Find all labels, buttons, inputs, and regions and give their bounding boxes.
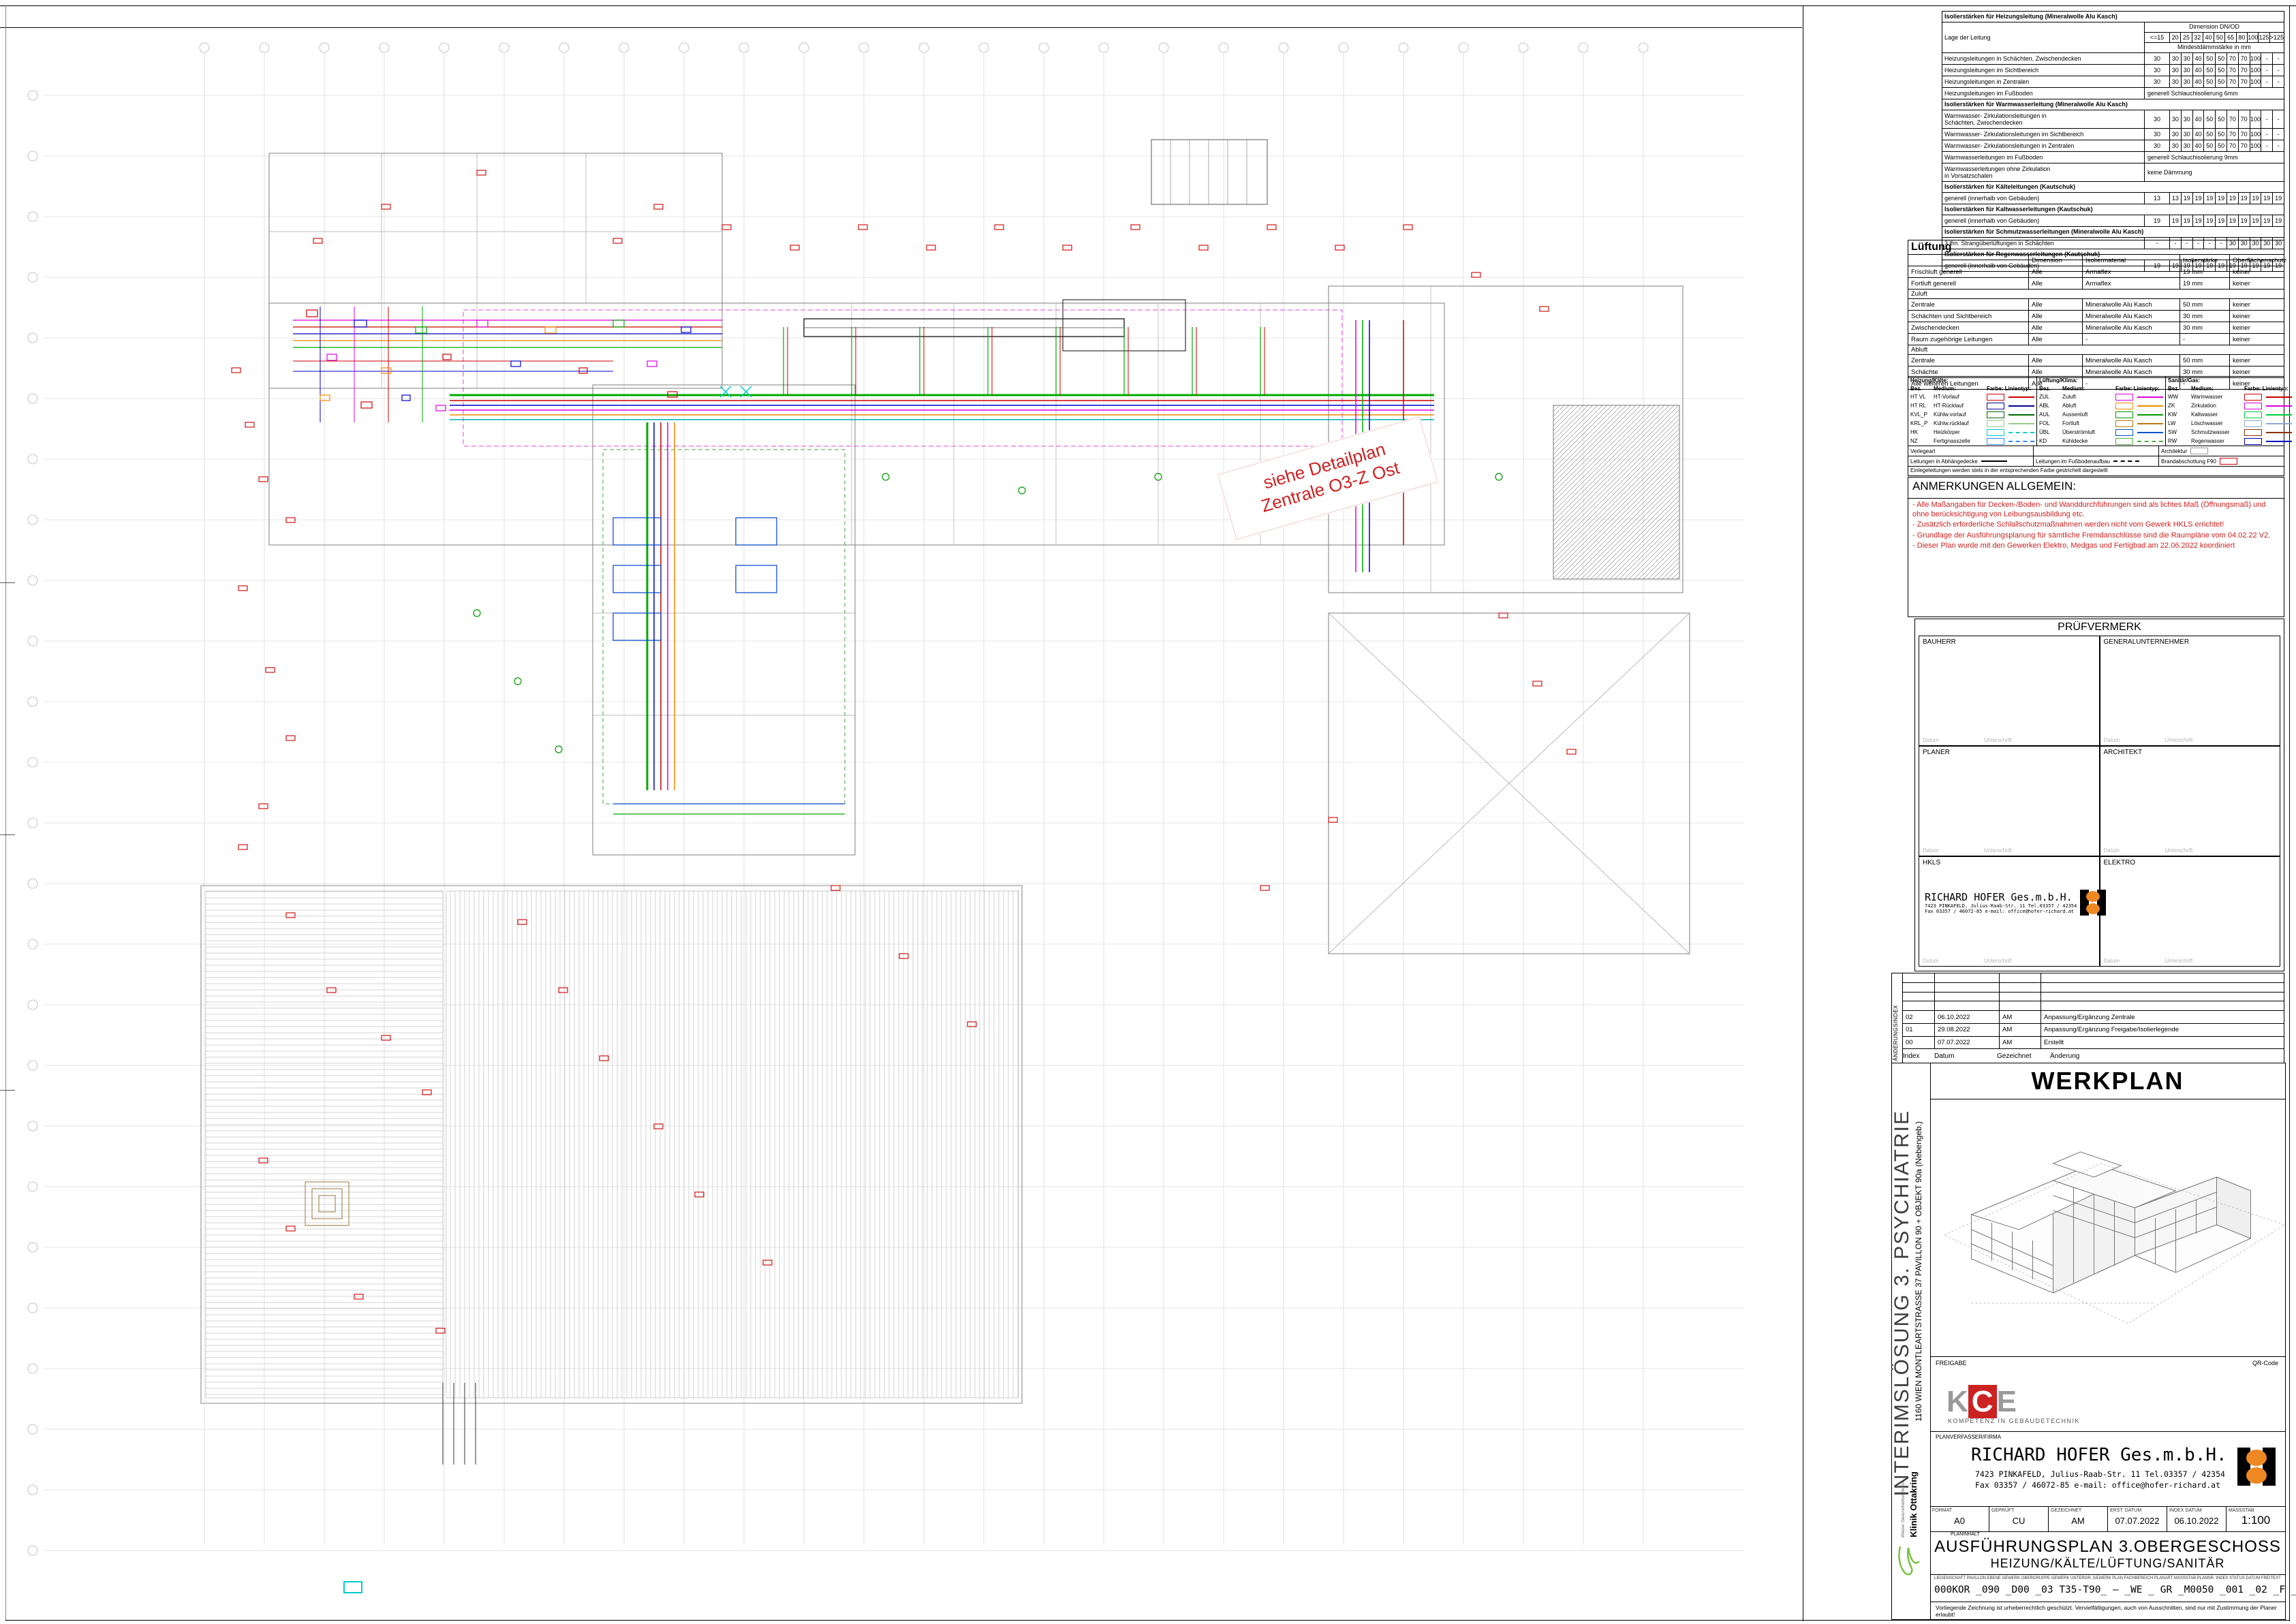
revision-cell: 02 [1903, 1011, 1935, 1023]
ventilation-cell: Zentrale [1908, 299, 2029, 310]
ins-value-cell: 19 [2250, 193, 2262, 204]
legend-linetype [2137, 396, 2163, 398]
ins-value-cell: 19 [2145, 215, 2170, 226]
legend-fussboden: Leitungen im Fußbodenaufbau [2034, 456, 2159, 466]
legend-color-swatch [2115, 438, 2133, 445]
ins-value-cell: 100 [2250, 129, 2262, 140]
legend-verlegeart: Verlegeart [1908, 446, 2034, 456]
legend-head-farbe: Farbe: Linientyp: [2244, 386, 2289, 392]
ins-dim-cell: 100 [2248, 33, 2259, 42]
revision-cell: 06.10.2022 [1935, 1011, 2000, 1023]
legend-head-bez: Bez. [2168, 386, 2191, 392]
ins-header-right: Dimension DN/OD<=1520253240506580100125>… [2145, 22, 2284, 52]
ins-value-cell: 70 [2239, 65, 2250, 76]
revision-empty-cell [1935, 973, 2000, 982]
equipment-box [327, 354, 337, 360]
revision-cell: 00 [1903, 1037, 1935, 1049]
firm-address-2: Fax 03357 / 46072-85 e-mail: office@hofe… [1975, 1480, 2220, 1490]
equipment-box [647, 361, 657, 366]
revision-empty-cell [2000, 973, 2041, 982]
grid-bubble-top [1339, 43, 1348, 52]
legend-linetype [2137, 405, 2163, 407]
revision-footer-datum: Datum [1934, 1052, 1997, 1060]
ventilation-cell: Alle [2029, 266, 2083, 277]
ins-value-cell: 19 [2250, 215, 2262, 226]
planverfasser-label: PLANVERFASSER/FIRMA [1936, 1434, 2001, 1440]
ventilation-cell: Mineralwolle Alu Kasch [2083, 311, 2180, 322]
ins-value-cell: 70 [2227, 76, 2239, 87]
grid-bubble-left [28, 697, 37, 706]
ins-value-cell: 50 [2216, 53, 2227, 64]
legend-group-title: Sanitär/Gas: [2166, 377, 2294, 386]
red-marker [1260, 886, 1269, 890]
legend-item-bez: ZK [2168, 403, 2191, 409]
legend-linetype [2266, 405, 2292, 407]
legend-item-bez: ÜBL [2039, 429, 2062, 435]
ins-row-label: generell (innerhalb von Gebäuden) [1942, 215, 2145, 226]
valve-circle [474, 610, 480, 616]
plannr-header: STATUS [2229, 1576, 2245, 1580]
legend-linetype [2137, 423, 2163, 424]
klinik-logo-block: Wiener Gesundheitsverbund Klinik Ottakri… [1895, 1415, 1927, 1578]
red-marker [1472, 272, 1480, 277]
equipment-box [354, 320, 367, 327]
ins-row-label: Warmwasserleitungen ohne Zirkulation in … [1942, 163, 2145, 181]
approval-block: PRÜFVERMERK BAUHERRDatumUnterschriftGENE… [1914, 619, 2284, 971]
ventilation-cell: keiner [2230, 278, 2284, 289]
revision-empty-cell [2000, 993, 2041, 1001]
plannr-header: MASSSTAB [2174, 1576, 2196, 1580]
klinik-logo-icon [1896, 1541, 1923, 1578]
unterschrift-label: Unterschrift [1984, 958, 2012, 964]
legend-item-bez: KVL_P [1910, 411, 1934, 418]
revision-cell: 01 [1903, 1024, 1935, 1036]
grid-bubble-top [679, 43, 689, 52]
legend-item-bez: AUL [2039, 411, 2062, 418]
legend-item-medium: Kühldecke [2062, 438, 2115, 444]
building-outline [269, 153, 722, 388]
ins-value-cell: 19 [2182, 193, 2193, 204]
ins-value-cell: - [2273, 76, 2284, 87]
datum-label: Datum [1923, 737, 1984, 743]
equipment-box [416, 327, 426, 333]
ins-value-cell: 30 [2170, 129, 2182, 140]
legend-head-farbe: Farbe: Linientyp: [1987, 386, 2031, 392]
equipment-box [736, 565, 777, 593]
grid-bubble-top [1099, 43, 1108, 52]
legend-head-medium: Medium: [2191, 386, 2244, 392]
legend-item: LWLöschwasser [2166, 419, 2294, 428]
kce-letter-e: E [1997, 1385, 2017, 1418]
legend-item-bez: WW [2168, 394, 2191, 400]
legend-item-medium: Abluft [2062, 403, 2115, 409]
ins-dim-cell: 50 [2214, 33, 2225, 42]
plannr-header: FREITEXT [2261, 1576, 2281, 1580]
grid-bubble-top [799, 43, 809, 52]
red-marker [477, 170, 486, 175]
plannr-header: GEWERK PLAN [2093, 1576, 2123, 1580]
legend-item-medium: Regenwasser [2191, 438, 2244, 444]
legend-brandabschottung: Brandabschottung F90 [2159, 456, 2284, 466]
project-address-vertical: 1160 WIEN MONTLEARTSTRASSE 37 PAVILLON 9… [1914, 1121, 1923, 1422]
grid-bubble-left [28, 1061, 37, 1070]
ventilation-cell: Alle [2029, 311, 2083, 322]
meta-field-format: FORMATA0 [1930, 1507, 1989, 1531]
red-marker [858, 225, 867, 230]
ins-value-cell: 40 [2193, 129, 2205, 140]
ventilation-cell: Schächten und Sichtbereich [1908, 311, 2029, 322]
ventilation-row: ZentraleAlleMineralwolle Alu Kasch50 mmk… [1908, 355, 2284, 366]
revision-empty-row [1903, 973, 2284, 983]
ins-value-cell: 19 [2239, 215, 2250, 226]
note-item: - Grundlage der Ausführungsplanung für s… [1912, 531, 2280, 541]
red-marker [1403, 225, 1412, 230]
legend-color-swatch [2115, 411, 2133, 418]
legend-item: ZKZirkulation [2166, 401, 2294, 410]
ins-value-cell: 70 [2239, 140, 2250, 151]
unterschrift-label: Unterschrift [2165, 958, 2193, 964]
legend-item: FOLFortluft [2037, 419, 2165, 428]
revision-table: 0206.10.2022AMAnpassung/Ergänzung Zentra… [1903, 973, 2284, 1063]
ins-dim-cell: 80 [2237, 33, 2248, 42]
legend-color-swatch [2244, 420, 2262, 427]
equipment-box [320, 395, 330, 401]
stair-detail [1151, 140, 1267, 204]
approval-cell-footer: DatumUnterschrift [2104, 958, 2277, 964]
revision-empty-row [1903, 993, 2284, 1002]
zone-outline [463, 310, 1342, 446]
equipment-box [511, 361, 521, 366]
legend-item: WWWarmwasser [2166, 392, 2294, 401]
ventilation-cell: keiner [2230, 355, 2284, 366]
ins-value-cell: 100 [2250, 76, 2262, 87]
grid-bubble-left [28, 576, 37, 585]
ins-data-row: generell (innerhalb von Gebäuden)1313191… [1942, 193, 2284, 204]
legend-head-medium: Medium: [2062, 386, 2115, 392]
ins-data-row: Warmwasserleitungen ohne Zirkulation in … [1942, 163, 2284, 182]
ins-dim-cell: 125 [2259, 33, 2269, 42]
datum-label: Datum [2104, 958, 2165, 964]
legend-group: Heizung/Kälte:Bez.Medium:Farbe: Linienty… [1908, 377, 2037, 446]
red-marker [238, 586, 247, 591]
ventilation-cell: Mineralwolle Alu Kasch [2083, 355, 2180, 366]
red-marker [1335, 245, 1344, 250]
legend-linetype [2008, 441, 2034, 442]
ins-section-title: Isolierstärken für Kälteleitungen (Kauts… [1942, 182, 2284, 193]
ins-value-cell: 30 [2145, 129, 2170, 140]
approval-cell-label: ARCHITEKT [2104, 749, 2277, 756]
legend-item-bez: KRL_P [1910, 420, 1934, 426]
approval-cell-label: PLANER [1923, 749, 2096, 756]
grid-bubble-left [28, 1485, 37, 1495]
grid-bubble-top [1219, 43, 1228, 52]
hofer-stamp-addr2: Fax 03357 / 46072-85 e-mail: office@hofe… [1925, 909, 2077, 914]
valve-circle [882, 473, 889, 480]
ins-value-cell: 50 [2216, 140, 2227, 151]
red-marker [266, 668, 275, 672]
grid-bubble-left [28, 515, 37, 525]
revision-cell: AM [2000, 1037, 2041, 1049]
ventilation-row: ZentraleAlleMineralwolle Alu Kasch50 mmk… [1908, 299, 2284, 311]
legend-blank [2034, 446, 2159, 456]
grid-bubble-top [919, 43, 929, 52]
ventilation-cell: Alle [2029, 322, 2083, 333]
red-marker [382, 204, 390, 209]
ventilation-subsection: Abluft [1908, 345, 2284, 354]
ins-row-values: 3030304050507070100-- [2145, 129, 2284, 140]
legend-item: KVL_PKühlw.vorlauf [1908, 410, 2036, 419]
grid-bubble-top [979, 43, 989, 52]
approval-cell-footer: DatumUnterschrift [1923, 737, 2096, 743]
legend-item: HT VLHT-Vorlauf [1908, 392, 2036, 401]
legend-item-medium: Kühlw.rücklauf [1934, 420, 1987, 426]
ins-value-cell: 70 [2227, 140, 2239, 151]
plannr-header: DATUM [2246, 1576, 2260, 1580]
ins-value-cell: 40 [2193, 110, 2205, 128]
grid-bubble-top [439, 43, 449, 52]
legend-extra-row: VerlegeartArchitektur [1908, 446, 2284, 456]
legend-linetype [2008, 396, 2034, 398]
approval-cell-elektro: ELEKTRODatumUnterschrift [2100, 856, 2281, 967]
legend-item: KDKühldecke [2037, 437, 2165, 446]
legend-item-bez: SW [2168, 429, 2191, 435]
ventilation-row: Abluft [1908, 345, 2284, 355]
red-marker [995, 225, 1004, 230]
ventilation-row: Frischluft generellAlleArmaflex19 mmkein… [1908, 266, 2284, 278]
ins-value-cell: 13 [2145, 193, 2170, 204]
firm-block: RICHARD HOFER Ges.m.b.H. 7423 PINKAFELD,… [1930, 1442, 2285, 1506]
ventilation-cell: Zentrale [1908, 355, 2029, 366]
datum-label: Datum [2104, 847, 2165, 854]
approval-cell-label: BAUHERR [1923, 638, 2096, 646]
grid-bubble-top [1039, 43, 1049, 52]
hofer-logo-icon [2237, 1448, 2276, 1486]
legend-linetype [2137, 432, 2163, 433]
grid-bubble-left [28, 636, 37, 646]
ins-value-cell: 40 [2193, 76, 2205, 87]
ins-data-row: Heizungsleitungen in Zentralen3030304050… [1942, 76, 2284, 88]
ins-value-cell: 50 [2204, 65, 2216, 76]
revision-empty-cell [1935, 983, 2000, 992]
legend-item-medium: Löschwasser [2191, 420, 2244, 426]
grid-bubble-top [1279, 43, 1288, 52]
ventilation-cell: Armaflex [2083, 266, 2180, 277]
grid-bubble-left [28, 879, 37, 888]
ins-lage-label: Lage der Leitung [1942, 22, 2145, 52]
equipment-box [402, 395, 410, 401]
legend-color-swatch [2115, 403, 2133, 409]
approval-cell-label: GENERALUNTERNEHMER [2104, 638, 2277, 646]
legend-color-swatch [2115, 394, 2133, 401]
qr-code-label: QR-Code [2252, 1360, 2278, 1367]
ins-dim-cell: 40 [2203, 33, 2214, 42]
red-marker [790, 245, 799, 250]
red-marker [927, 245, 935, 250]
plannr-header: EBENE [1987, 1576, 2001, 1580]
ins-value-cell: 70 [2239, 110, 2250, 128]
ventilation-header-cell: Isolierstärke [2180, 255, 2230, 266]
meta-field-label: GEZEICHNET [2051, 1508, 2081, 1513]
ins-value-cell: 19 [2227, 193, 2239, 204]
klinik-subtitle: Wiener Gesundheitsverbund [1901, 1482, 1906, 1537]
ins-row-label: Warmwasserleitungen im Fußboden [1942, 152, 2145, 163]
ins-value-cell: 30 [2182, 110, 2193, 128]
ins-dim-cell: >125 [2270, 33, 2284, 42]
grid-bubble-top [1399, 43, 1408, 52]
legend-groups: Heizung/Kälte:Bez.Medium:Farbe: Linienty… [1908, 377, 2284, 446]
datum-label: Datum [2104, 737, 2165, 743]
ins-dim-cell: 65 [2225, 33, 2236, 42]
ins-value-cell: 70 [2239, 129, 2250, 140]
red-marker [1499, 613, 1508, 618]
meta-field-value: A0 [1930, 1516, 1989, 1526]
meta-field-value: 06.10.2022 [2167, 1516, 2226, 1526]
ins-value-cell: 70 [2239, 53, 2250, 64]
ins-value-cell: 70 [2239, 76, 2250, 87]
grid-bubble-left [28, 394, 37, 403]
ventilation-grid: DimensionIsoliermaterialIsolierstärkeObe… [1908, 254, 2284, 390]
red-marker [1329, 817, 1337, 822]
equipment-box [477, 320, 488, 327]
legend-color-swatch [2244, 411, 2262, 418]
red-marker [613, 238, 622, 243]
meta-field-label: FORMAT [1932, 1508, 1952, 1513]
approval-cell-planer: PLANERDatumUnterschrift [1919, 746, 2100, 856]
ins-value-cell: 19 [2193, 215, 2205, 226]
meta-field-value: CU [1989, 1516, 2048, 1526]
valve-circle [555, 746, 562, 753]
ins-section-title: Isolierstärken für Schmutzwasserleitunge… [1942, 227, 2284, 238]
grid-bubble-top [1459, 43, 1468, 52]
ins-value-cell: 50 [2204, 53, 2216, 64]
approval-cell-footer: DatumUnterschrift [1923, 958, 2096, 964]
ins-dim-cell: <=15 [2145, 33, 2170, 42]
grid-bubble-left [28, 1000, 37, 1010]
equipment-box [307, 310, 317, 317]
legend-group: Sanitär/Gas:Bez.Medium:Farbe: Linientyp:… [2166, 377, 2294, 446]
ventilation-cell: 50 mm [2180, 299, 2230, 310]
ins-value-cell: 19 [2216, 193, 2227, 204]
approval-cell-footer: DatumUnterschrift [2104, 847, 2277, 854]
legend-linetype [2008, 432, 2034, 433]
ins-value-cell: 50 [2216, 65, 2227, 76]
ventilation-cell: Mineralwolle Alu Kasch [2083, 299, 2180, 310]
hofer-stamp: RICHARD HOFER Ges.m.b.H.7423 PINKAFELD, … [1925, 890, 2094, 916]
legend-item-medium: Überströmluft [2062, 429, 2115, 435]
ins-value-cell: 30 [2182, 53, 2193, 64]
revision-footer: IndexDatumGezeichnetÄnderung [1903, 1049, 2284, 1063]
legend-item: KRL_PKühlw.rücklauf [1908, 419, 2036, 428]
approval-cell-architekt: ARCHITEKTDatumUnterschrift [2100, 746, 2281, 856]
ins-value-cell: 70 [2227, 53, 2239, 64]
plannr-header: PLANART [2154, 1576, 2173, 1580]
klinik-name: Klinik Ottakring [1908, 1471, 1919, 1537]
ins-value-cell: - [2261, 110, 2273, 128]
grid-bubble-left [28, 1303, 37, 1313]
red-marker [1267, 225, 1276, 230]
hofer-stamp-text: RICHARD HOFER Ges.m.b.H.7423 PINKAFELD, … [1925, 891, 2077, 914]
revision-empty-cell [1903, 993, 1935, 1001]
equipment-box [681, 327, 691, 332]
ins-value-cell: 30 [2170, 76, 2182, 87]
legend-color-swatch [2115, 420, 2133, 427]
meta-field-erst-datum: ERST. DATUM07.07.2022 [2108, 1507, 2167, 1531]
legend-item-bez: KD [2039, 438, 2062, 444]
ins-data-row: generell (innerhalb von Gebäuden)1919191… [1942, 215, 2284, 227]
insulation-tables: Isolierstärken für Heizungsleitung (Mine… [1942, 11, 2284, 272]
plan-title-main: AUSFÜHRUNGSPLAN 3.OBERGESCHOSS [1930, 1537, 2285, 1557]
ins-value-cell: 70 [2227, 110, 2239, 128]
notes-title: ANMERKUNGEN ALLGEMEIN: [1908, 478, 2284, 499]
ventilation-row: Raum zugehörige LeitungenAlle--keiner [1908, 334, 2284, 345]
cell [2086, 891, 2100, 902]
ins-value-cell: 19 [2273, 193, 2284, 204]
ventilation-title: Lüftung [1908, 240, 2284, 254]
ventilation-header-cell: Dimension [2029, 255, 2083, 266]
ins-value-cell: - [2261, 76, 2273, 87]
plannr-header: LIEGENSCHAFT [1934, 1576, 1966, 1580]
revision-cell: Anpassung/Ergänzung Zentrale [2041, 1011, 2284, 1023]
ins-value-cell: 50 [2216, 76, 2227, 87]
ins-data-row: Heizungsleitungen im Sichtbereich3030304… [1942, 65, 2284, 76]
ins-section-title: Isolierstärken für Warmwasserleitung (Mi… [1942, 99, 2284, 110]
ventilation-row: Zuluft [1908, 290, 2284, 299]
meta-field-value: AM [2049, 1516, 2107, 1526]
equipment-box [613, 320, 624, 327]
approval-cell-bauherr: BAUHERRDatumUnterschrift [1919, 636, 2100, 746]
equipment-box [579, 368, 587, 373]
approval-title: PRÜFVERMERK [1915, 619, 2284, 636]
ins-value-cell: 19 [2261, 193, 2273, 204]
ins-data-row: Warmwasserleitungen im Fußbodengenerell … [1942, 152, 2284, 163]
ins-value-cell: 30 [2170, 53, 2182, 64]
ventilation-header-row: DimensionIsoliermaterialIsolierstärkeObe… [1908, 255, 2284, 266]
datum-label: Datum [1923, 847, 1984, 854]
red-marker [232, 368, 241, 373]
grid-bubble-left [28, 91, 37, 100]
red-marker [245, 422, 254, 427]
legend-color-swatch [1987, 420, 2004, 427]
legend-item: KWKaltwasser [2166, 410, 2294, 419]
ventilation-row: ZwischendeckenAlleMineralwolle Alu Kasch… [1908, 322, 2284, 334]
ventilation-cell: 30 mm [2180, 322, 2230, 333]
unterschrift-label: Unterschrift [1984, 737, 2012, 743]
ins-value-cell: 19 [2227, 215, 2239, 226]
cell [2086, 903, 2100, 914]
legend-color-swatch [2244, 429, 2262, 436]
plannr-header: FACHBEREICH [2124, 1576, 2153, 1580]
title-block-main: WERKPLAN [1930, 1063, 2285, 1619]
red-marker [286, 518, 295, 522]
plannr-header: PLANNR. [2197, 1576, 2215, 1580]
revision-cell: AM [2000, 1011, 2041, 1023]
ventilation-cell: Mineralwolle Alu Kasch [2083, 322, 2180, 333]
ventilation-row: Fortluft generellAlleArmaflex19 mmkeiner [1908, 278, 2284, 290]
grid-bubble-top [859, 43, 869, 52]
meta-field-label: ERST. DATUM [2110, 1508, 2141, 1513]
revision-vertical-label: ÄNDERUNGSINDEX [1891, 973, 1903, 1063]
ins-value-cell: - [2261, 129, 2273, 140]
ins-row-label: Heizungsleitungen im Sichtbereich [1942, 65, 2145, 76]
legend-linetype [2008, 414, 2034, 416]
revision-cell: Erstellt [2041, 1037, 2284, 1049]
ins-row-values: 3030304050507070100-- [2145, 110, 2284, 128]
shaft-hatch [1553, 405, 1679, 579]
floor-plan-drawing [0, 0, 1802, 1624]
hatch-area [446, 891, 1019, 1398]
ventilation-cell: Raum zugehörige Leitungen [1908, 334, 2029, 345]
ins-value-cell: 50 [2204, 140, 2216, 151]
